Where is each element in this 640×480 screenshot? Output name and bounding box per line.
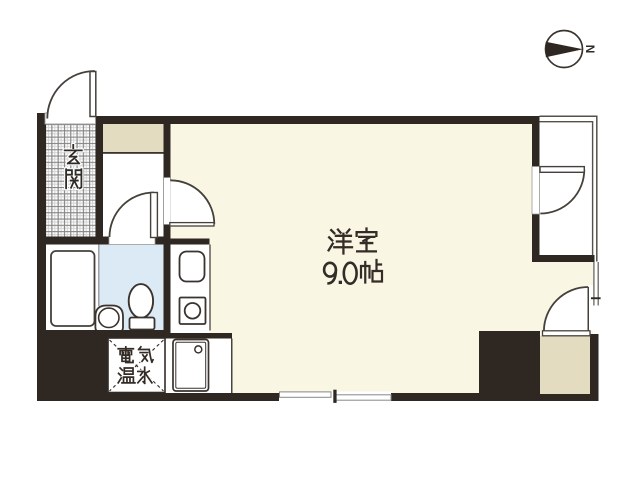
svg-text:N: N [583, 45, 597, 54]
